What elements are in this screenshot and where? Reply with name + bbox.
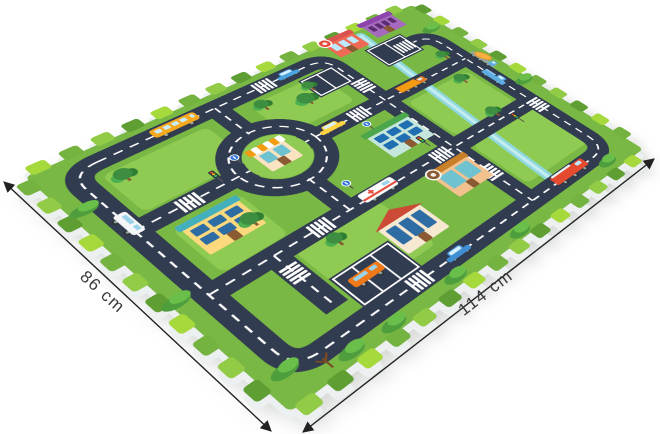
product-image: 86 cm114 cm bbox=[0, 0, 660, 434]
play-mat bbox=[0, 0, 660, 434]
